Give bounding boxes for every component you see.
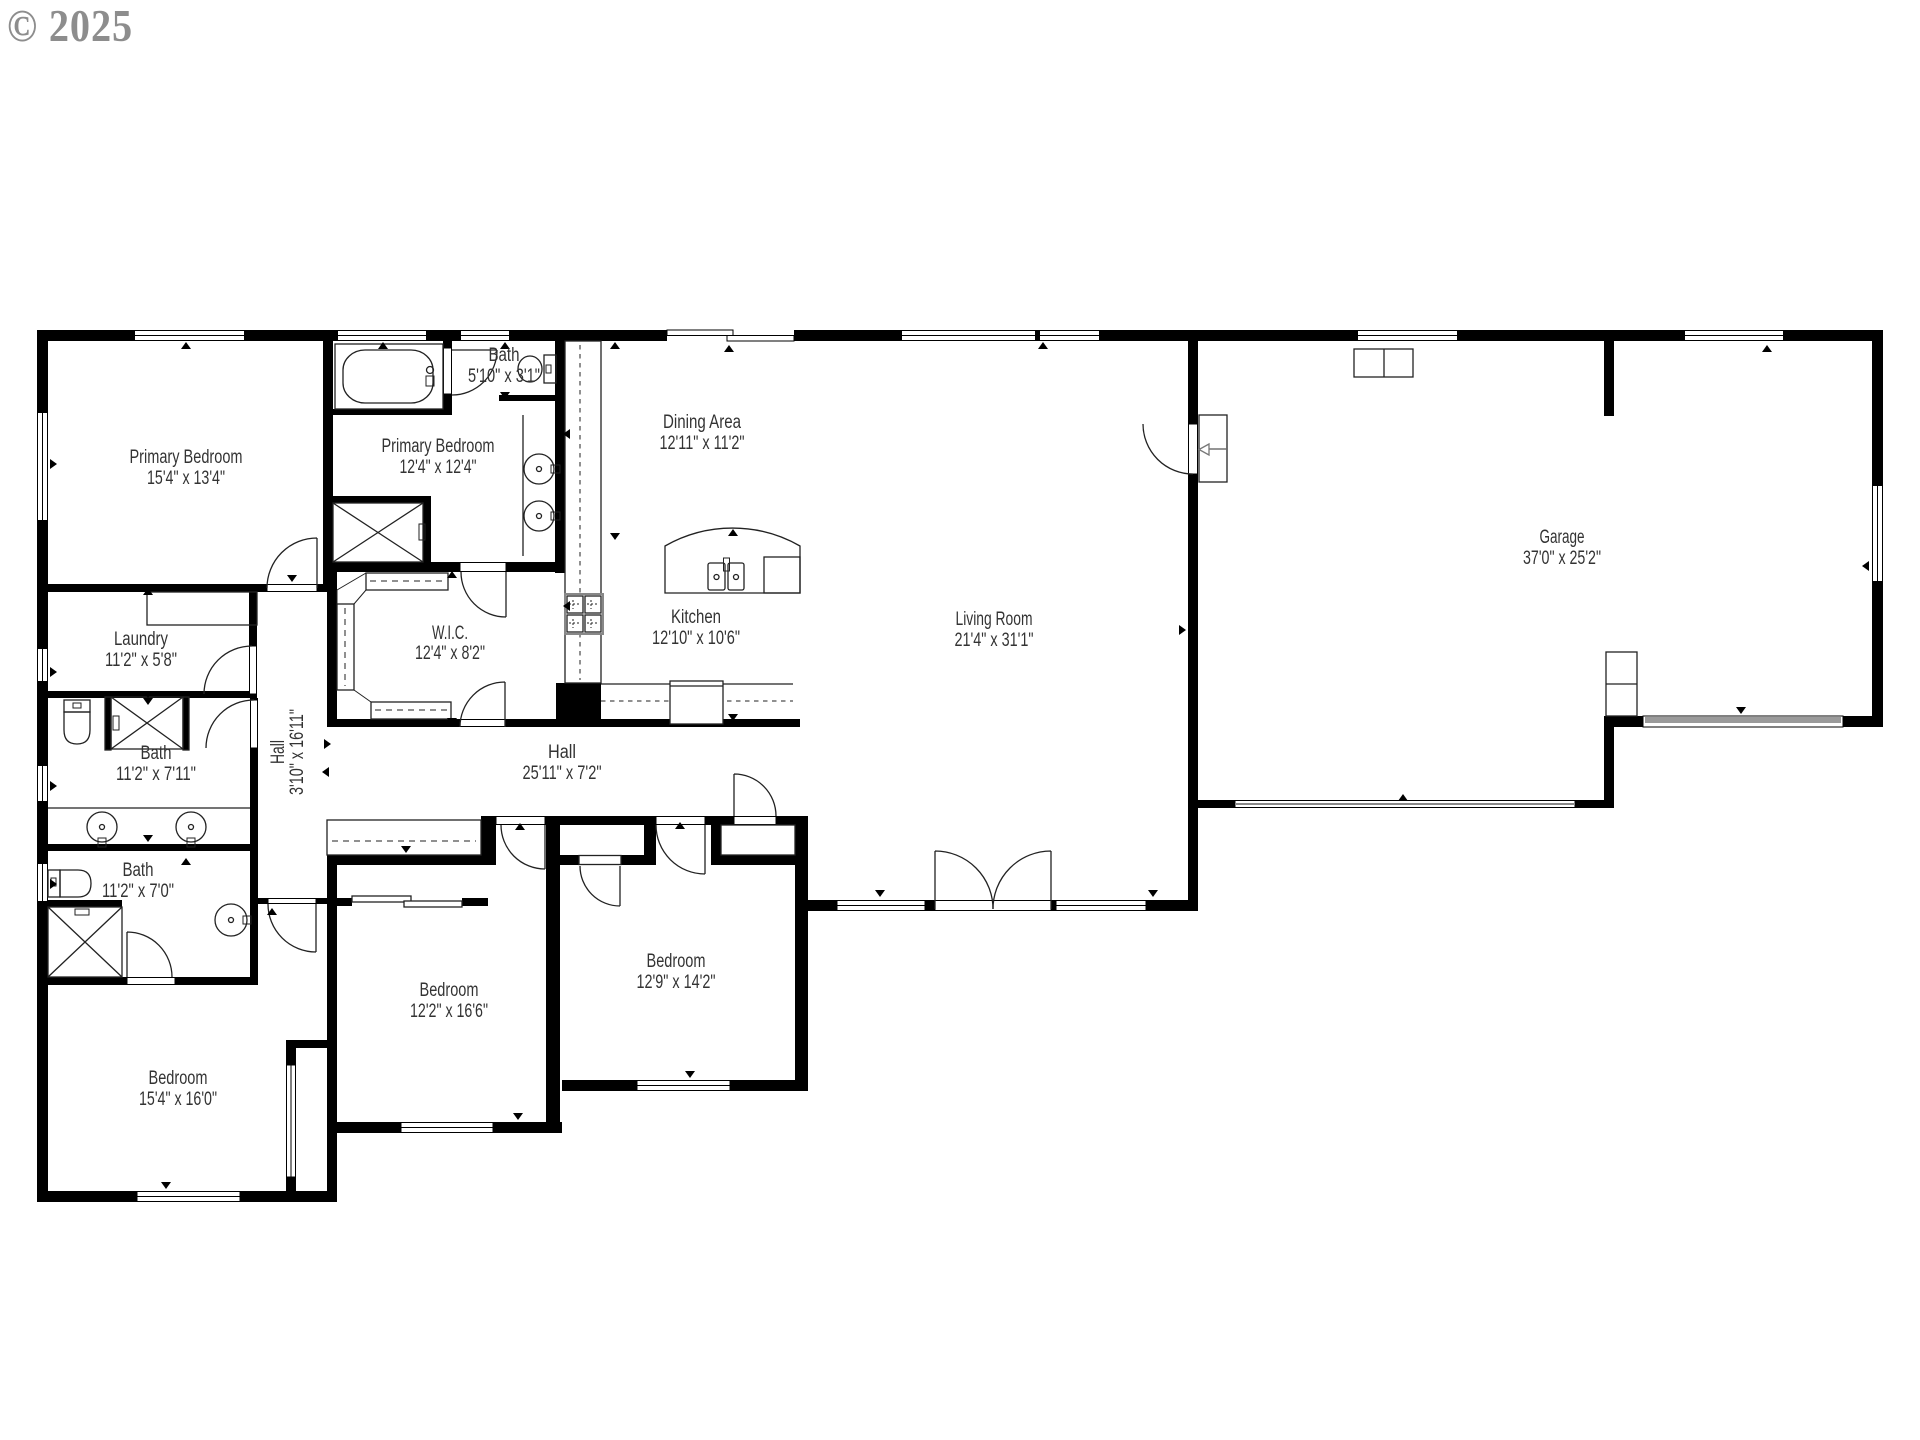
svg-text:Bath: Bath	[141, 743, 172, 764]
svg-text:Bedroom: Bedroom	[420, 980, 479, 1001]
svg-text:15'4" x 16'0": 15'4" x 16'0"	[139, 1089, 217, 1110]
svg-text:Bath: Bath	[123, 860, 154, 881]
svg-text:21'4" x 31'1": 21'4" x 31'1"	[955, 630, 1034, 651]
svg-text:15'4" x 13'4": 15'4" x 13'4"	[147, 468, 225, 489]
svg-text:12'9" x 14'2": 12'9" x 14'2"	[637, 972, 716, 993]
svg-text:Garage: Garage	[1540, 527, 1585, 548]
svg-text:Hall: Hall	[268, 740, 289, 764]
svg-text:W.I.C.: W.I.C.	[432, 623, 468, 644]
svg-text:Hall: Hall	[548, 742, 576, 763]
svg-text:© 2025: © 2025	[7, 0, 133, 51]
svg-text:Dining Area: Dining Area	[663, 412, 741, 433]
svg-text:Primary Bedroom: Primary Bedroom	[130, 447, 243, 468]
svg-text:11'2" x 5'8": 11'2" x 5'8"	[105, 650, 177, 671]
svg-text:37'0" x 25'2": 37'0" x 25'2"	[1523, 548, 1601, 569]
svg-text:Bedroom: Bedroom	[149, 1068, 208, 1089]
svg-text:25'11" x 7'2": 25'11" x 7'2"	[523, 763, 602, 784]
svg-text:12'4" x 8'2": 12'4" x 8'2"	[415, 643, 485, 664]
svg-text:3'10" x 16'11": 3'10" x 16'11"	[287, 709, 308, 795]
svg-text:12'2" x 16'6": 12'2" x 16'6"	[410, 1001, 488, 1022]
svg-text:Bedroom: Bedroom	[647, 951, 706, 972]
svg-text:11'2" x 7'0": 11'2" x 7'0"	[102, 881, 174, 902]
svg-text:5'10" x 3'1": 5'10" x 3'1"	[468, 366, 540, 387]
svg-text:12'10" x 10'6": 12'10" x 10'6"	[652, 628, 740, 649]
svg-text:Kitchen: Kitchen	[671, 607, 721, 628]
svg-text:Primary Bedroom: Primary Bedroom	[382, 436, 495, 457]
svg-text:11'2" x 7'11": 11'2" x 7'11"	[116, 764, 196, 785]
svg-text:12'11" x 11'2": 12'11" x 11'2"	[660, 433, 745, 454]
svg-text:Bath: Bath	[489, 345, 520, 366]
svg-text:Living Room: Living Room	[956, 609, 1033, 630]
svg-text:Laundry: Laundry	[114, 629, 168, 650]
svg-text:12'4" x 12'4": 12'4" x 12'4"	[400, 457, 477, 478]
